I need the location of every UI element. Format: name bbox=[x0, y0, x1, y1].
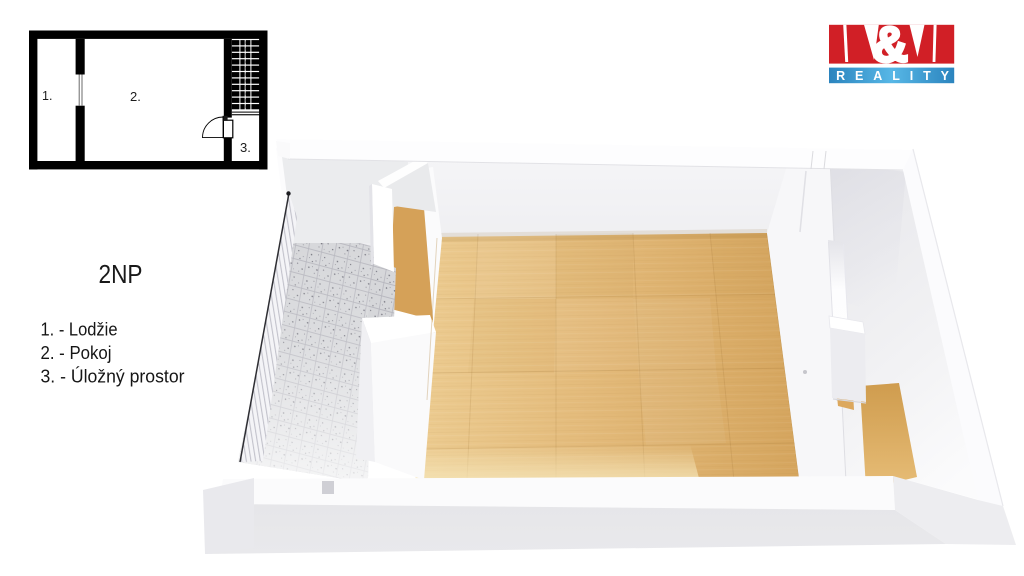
svg-text:REALITY: REALITY bbox=[836, 69, 959, 83]
svg-text:2.: 2. bbox=[130, 89, 141, 104]
svg-text:2NP: 2NP bbox=[99, 259, 143, 289]
svg-text:2. - Pokoj: 2. - Pokoj bbox=[41, 343, 112, 363]
svg-text:1.: 1. bbox=[42, 89, 52, 103]
svg-text:1. - Lodžie: 1. - Lodžie bbox=[41, 320, 118, 340]
svg-text:&: & bbox=[872, 17, 908, 73]
svg-text:3.: 3. bbox=[240, 140, 251, 155]
svg-text:3. - Úložný prostor: 3. - Úložný prostor bbox=[41, 366, 185, 387]
